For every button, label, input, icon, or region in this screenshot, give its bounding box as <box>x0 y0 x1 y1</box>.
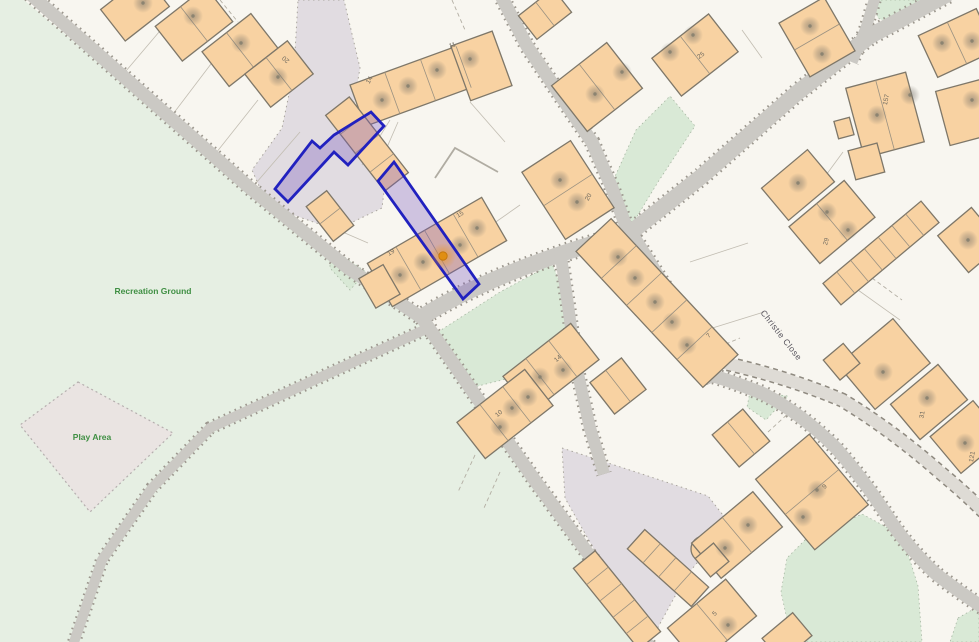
address-point-dot <box>970 98 973 101</box>
address-point-dot <box>726 623 729 626</box>
address-point-dot <box>670 320 673 323</box>
map-canvas[interactable]: Recreation GroundPlay AreaChristie Close… <box>0 0 979 642</box>
address-point-dot <box>398 273 401 276</box>
address-point-dot <box>498 425 501 428</box>
address-point-dot <box>796 181 799 184</box>
address-point-dot <box>141 1 144 4</box>
area-label: Play Area <box>73 432 112 442</box>
address-point-dot <box>685 343 688 346</box>
address-point-dot <box>561 368 564 371</box>
address-point-dot <box>538 375 541 378</box>
address-point-dot <box>620 70 623 73</box>
address-point-dot <box>468 57 471 60</box>
address-point-dot <box>406 84 409 87</box>
address-point-dot <box>966 238 969 241</box>
address-point-dot <box>691 33 694 36</box>
address-point-dot <box>723 546 726 549</box>
address-point-dot <box>475 226 478 229</box>
address-point-dot <box>940 41 943 44</box>
address-point-dot <box>593 92 596 95</box>
address-point-dot <box>421 260 424 263</box>
address-point-dot <box>668 50 671 53</box>
map-viewport[interactable]: Recreation GroundPlay AreaChristie Close… <box>0 0 979 642</box>
address-point-dot <box>239 41 242 44</box>
address-point-dot <box>825 210 828 213</box>
address-point-dot <box>746 523 749 526</box>
address-point-dot <box>276 75 279 78</box>
address-point-dot <box>963 441 966 444</box>
address-point-dot <box>881 370 884 373</box>
address-point-dot <box>820 52 823 55</box>
address-point-dot <box>575 200 578 203</box>
subject-property-marker[interactable] <box>430 243 456 269</box>
address-point-dot <box>846 228 849 231</box>
address-point-dot <box>526 395 529 398</box>
address-point-dot <box>801 515 804 518</box>
address-point-dot <box>653 300 656 303</box>
address-point-dot <box>191 14 194 17</box>
address-point-dot <box>458 243 461 246</box>
address-point-dot <box>558 178 561 181</box>
address-point-dot <box>633 276 636 279</box>
address-point-dot <box>510 406 513 409</box>
address-point-dot <box>908 93 911 96</box>
area-label: Recreation Ground <box>115 286 192 296</box>
address-point-dot <box>435 68 438 71</box>
address-point-dot <box>875 113 878 116</box>
address-point-dot <box>815 488 818 491</box>
address-point-dot <box>970 39 973 42</box>
address-point-dot <box>616 255 619 258</box>
address-point-dot <box>925 396 928 399</box>
address-point-dot <box>380 98 383 101</box>
address-point-dot <box>808 24 811 27</box>
